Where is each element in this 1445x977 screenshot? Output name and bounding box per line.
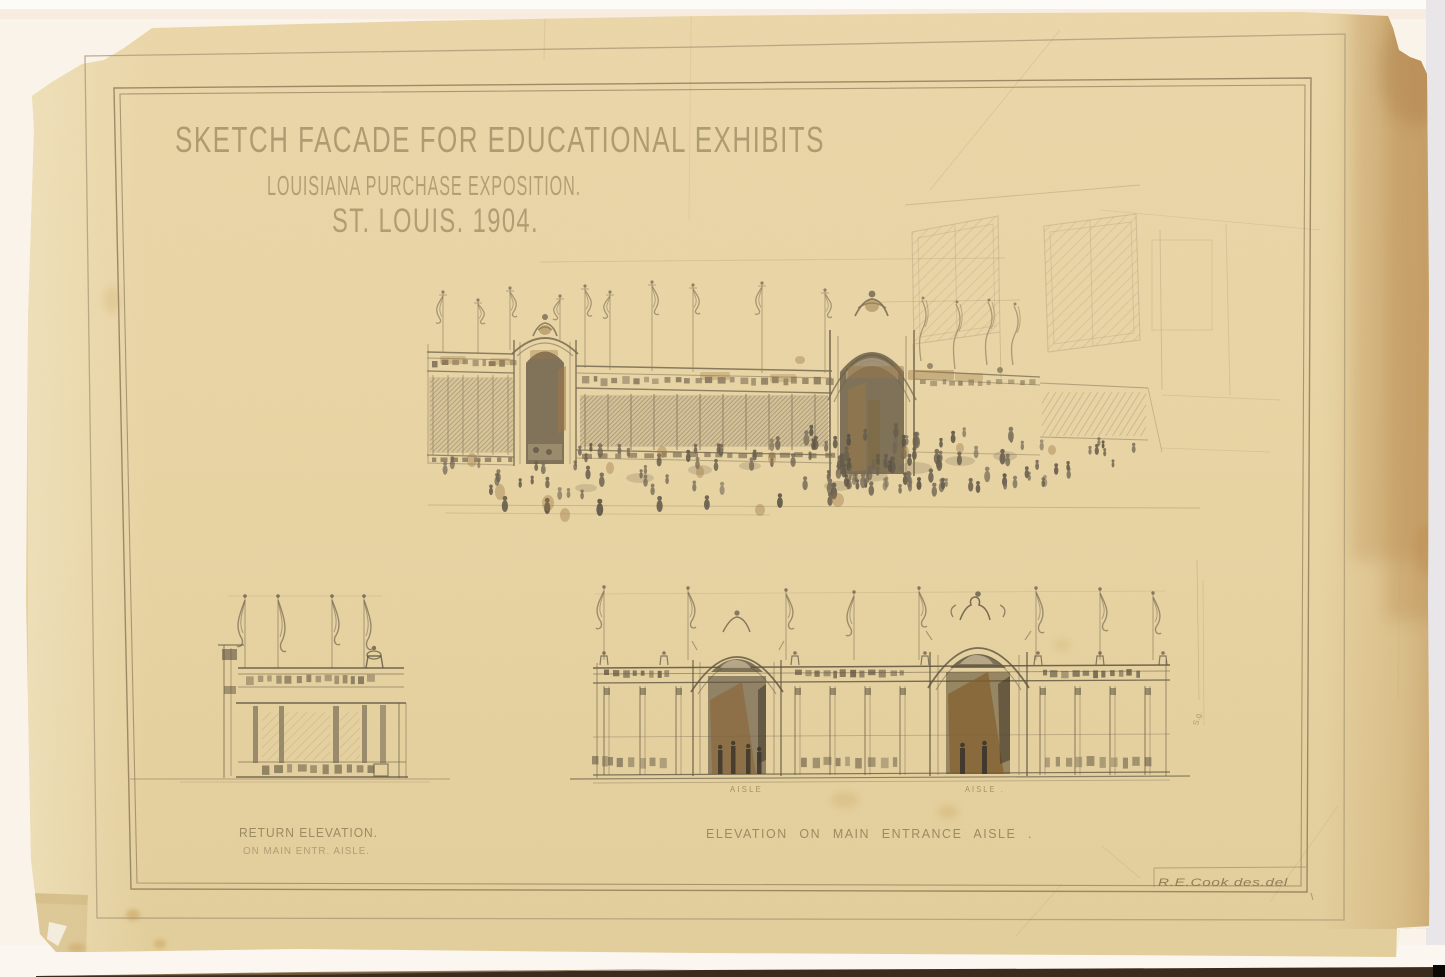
svg-text:AISLE .: AISLE . bbox=[965, 784, 1005, 794]
svg-text:SKETCH FACADE FOR EDUCATIONAL: SKETCH FACADE FOR EDUCATIONAL EXHIBITS bbox=[175, 119, 825, 160]
svg-text:RETURN ELEVATION.: RETURN ELEVATION. bbox=[239, 826, 378, 840]
svg-text:R.E.Cook des.del: R.E.Cook des.del bbox=[1158, 877, 1288, 889]
svg-text:ON MAIN ENTR. AISLE.: ON MAIN ENTR. AISLE. bbox=[243, 846, 370, 857]
svg-text:AISLE: AISLE bbox=[730, 784, 763, 794]
svg-text:ST. LOUIS. 1904.: ST. LOUIS. 1904. bbox=[332, 202, 539, 240]
svg-text:LOUISIANA PURCHASE EXPOSITION.: LOUISIANA PURCHASE EXPOSITION. bbox=[267, 170, 581, 201]
svg-text:ELEVATION ON MAIN ENTRANCE AIS: ELEVATION ON MAIN ENTRANCE AISLE . bbox=[706, 826, 1033, 841]
